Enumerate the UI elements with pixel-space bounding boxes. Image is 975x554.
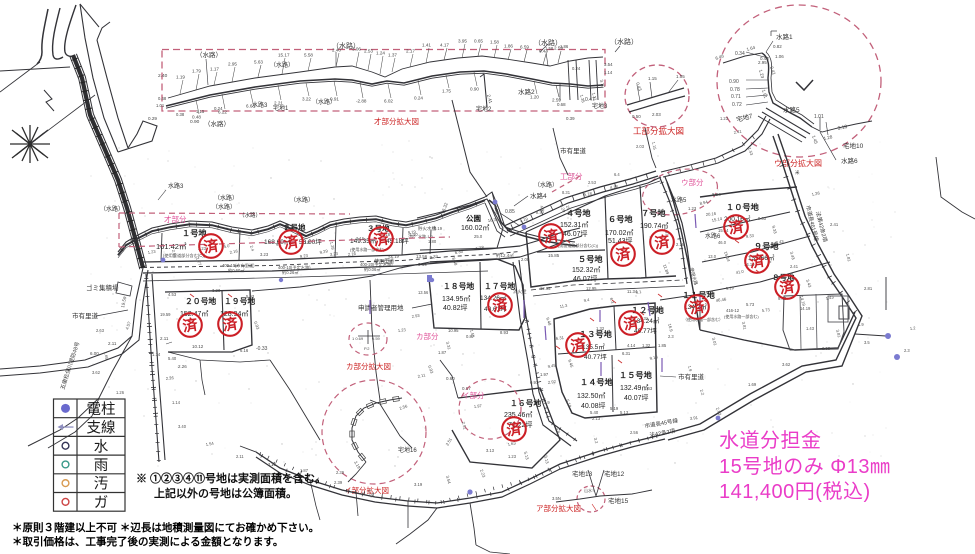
svg-text:2.11: 2.11 — [160, 336, 169, 341]
svg-text:6.4: 6.4 — [614, 172, 620, 177]
svg-text:水路5: 水路5 — [783, 105, 800, 114]
svg-text:5.93: 5.93 — [246, 294, 255, 299]
svg-text:2.40: 2.40 — [158, 73, 168, 79]
svg-text:0.71: 0.71 — [731, 94, 741, 100]
svg-text:15.85: 15.85 — [548, 253, 560, 258]
svg-text:宅地2: 宅地2 — [476, 105, 492, 113]
svg-text:P.2: P.2 — [364, 346, 370, 351]
svg-text:宅地3: 宅地3 — [592, 102, 608, 110]
svg-text:152.31㎡: 152.31㎡ — [560, 221, 588, 229]
svg-text:1.85: 1.85 — [658, 343, 667, 348]
svg-text:＊原則３階建以上不可 ＊辺長は地積測量図にてお確かめ下さい。: ＊原則３階建以上不可 ＊辺長は地積測量図にてお確かめ下さい。 — [12, 521, 319, 534]
svg-text:カ部分拡大図: カ部分拡大図 — [346, 361, 391, 371]
svg-text:宅地16: 宅地16 — [398, 446, 417, 454]
svg-text:水道分担金: 水道分担金 — [719, 429, 822, 452]
svg-text:134.95㎡: 134.95㎡ — [442, 295, 470, 303]
svg-text:1.14: 1.14 — [172, 400, 181, 405]
svg-text:1.23: 1.23 — [720, 116, 729, 121]
svg-text:2.53: 2.53 — [588, 180, 597, 185]
svg-text:3.62: 3.62 — [782, 362, 791, 367]
svg-text:宅地15: 宅地15 — [608, 496, 629, 505]
svg-text:160.02㎡: 160.02㎡ — [461, 224, 489, 232]
svg-text:40.82坪: 40.82坪 — [443, 304, 468, 312]
svg-text:13.56: 13.56 — [418, 290, 429, 295]
svg-text:0.97: 0.97 — [530, 380, 539, 385]
svg-text:6.02: 6.02 — [384, 99, 393, 104]
svg-text:3.40: 3.40 — [178, 424, 187, 429]
svg-text:2.13: 2.13 — [592, 416, 601, 421]
svg-text:132.50㎡: 132.50㎡ — [577, 392, 605, 400]
svg-text:イ部分拡大図: イ部分拡大図 — [344, 485, 389, 495]
svg-text:水路3: 水路3 — [252, 101, 268, 109]
svg-text:上記以外の号地は公簿面積。: 上記以外の号地は公簿面積。 — [154, 486, 297, 500]
svg-text:1.15: 1.15 — [648, 76, 657, 81]
svg-text:（水路）: （水路） — [534, 181, 558, 189]
svg-text:１０号地: １０号地 — [726, 202, 760, 212]
svg-text:（水路）: （水路） — [312, 98, 336, 106]
svg-text:2.26: 2.26 — [166, 375, 175, 381]
svg-text:-2.88: -2.88 — [356, 99, 367, 104]
svg-text:水路3: 水路3 — [168, 182, 184, 190]
svg-text:1.23: 1.23 — [688, 206, 697, 211]
svg-text:3.19: 3.19 — [414, 482, 423, 487]
svg-text:0.24: 0.24 — [414, 96, 423, 101]
svg-text:3.22: 3.22 — [302, 97, 311, 102]
svg-text:水路1: 水路1 — [776, 32, 793, 41]
svg-text:2.26: 2.26 — [178, 364, 187, 369]
svg-text:8.31: 8.31 — [562, 190, 571, 195]
svg-text:14.19: 14.19 — [800, 306, 811, 311]
svg-text:雨: 雨 — [94, 458, 109, 474]
svg-text:汚: 汚 — [94, 476, 109, 493]
svg-text:才部分拡大図: 才部分拡大図 — [374, 116, 419, 126]
svg-text:5.19: 5.19 — [610, 406, 619, 411]
svg-text:（水路）: （水路） — [212, 203, 236, 211]
svg-text:0.78: 0.78 — [730, 87, 740, 93]
svg-text:46.07坪: 46.07坪 — [563, 230, 588, 238]
svg-text:4.14: 4.14 — [627, 343, 636, 348]
svg-text:1.05: 1.05 — [676, 74, 685, 79]
svg-text:1.06: 1.06 — [775, 54, 784, 59]
svg-text:水: 水 — [94, 438, 109, 455]
svg-text:1.15: 1.15 — [196, 109, 205, 114]
svg-text:40.08坪: 40.08坪 — [581, 402, 606, 410]
svg-text:1.87: 1.87 — [438, 350, 447, 355]
svg-text:5.40: 5.40 — [168, 356, 177, 361]
svg-text:2.11: 2.11 — [236, 454, 244, 459]
svg-text:山水?: 山水? — [584, 487, 595, 493]
svg-text:2.08: 2.08 — [521, 257, 530, 262]
svg-text:1.97: 1.97 — [540, 372, 549, 377]
svg-text:0.68: 0.68 — [557, 102, 566, 107]
svg-text:0.39: 0.39 — [566, 116, 575, 121]
svg-text:6.16: 6.16 — [240, 348, 249, 353]
svg-text:8.94: 8.94 — [712, 192, 721, 197]
svg-text:2.11: 2.11 — [108, 341, 117, 346]
svg-text:才部分: 才部分 — [164, 214, 187, 224]
svg-text:1.63: 1.63 — [644, 386, 653, 391]
svg-text:0.60: 0.60 — [446, 376, 455, 381]
svg-text:0.34: 0.34 — [735, 51, 745, 57]
svg-text:市有里道: 市有里道 — [72, 311, 99, 320]
svg-text:1.58: 1.58 — [490, 40, 499, 45]
svg-text:15号地のみ Φ13㎜: 15号地のみ Φ13㎜ — [719, 455, 891, 478]
svg-text:５号地: ５号地 — [578, 254, 603, 264]
svg-text:公園: 公園 — [466, 214, 481, 223]
svg-text:1.43: 1.43 — [806, 326, 815, 331]
svg-text:4.53: 4.53 — [168, 292, 177, 297]
svg-text:宅地1: 宅地1 — [273, 104, 289, 112]
svg-text:3.62: 3.62 — [92, 370, 101, 375]
svg-text:0.59: 0.59 — [372, 336, 381, 341]
svg-text:2.95: 2.95 — [758, 60, 767, 65]
svg-text:141,400円(税込): 141,400円(税込) — [719, 480, 871, 503]
svg-text:2.63: 2.63 — [822, 346, 831, 351]
svg-text:25.0: 25.0 — [474, 234, 483, 239]
svg-text:-0.33: -0.33 — [256, 346, 268, 352]
svg-text:5.58: 5.58 — [304, 53, 313, 58]
svg-text:1.14: 1.14 — [152, 352, 161, 357]
svg-text:イ部分: イ部分 — [462, 390, 485, 400]
svg-text:19.59: 19.59 — [160, 312, 171, 317]
svg-text:9.19: 9.19 — [726, 285, 735, 291]
svg-text:（水路）: （水路） — [239, 211, 261, 219]
svg-text:1.23: 1.23 — [508, 454, 517, 459]
svg-text:2.95: 2.95 — [228, 62, 237, 67]
svg-text:2.18: 2.18 — [676, 242, 685, 247]
svg-text:0.90: 0.90 — [470, 87, 479, 92]
svg-text:約12.4㎡: 約12.4㎡ — [496, 252, 514, 259]
svg-text:（水路）: （水路） — [196, 50, 222, 59]
svg-text:市有里道: 市有里道 — [678, 372, 705, 381]
svg-text:3.95: 3.95 — [458, 39, 467, 44]
svg-text:宅地10: 宅地10 — [843, 141, 864, 150]
svg-text:2.41: 2.41 — [790, 264, 799, 269]
svg-text:10.95: 10.95 — [448, 328, 459, 333]
svg-text:0.82: 0.82 — [773, 44, 782, 49]
svg-text:ア部分拡大図: ア部分拡大図 — [536, 503, 581, 513]
svg-text:約0.60㎡: 約0.60㎡ — [228, 267, 245, 274]
svg-text:水路4: 水路4 — [530, 191, 547, 200]
svg-text:（水路）: （水路） — [610, 37, 638, 46]
svg-text:１８号地: １８号地 — [443, 281, 474, 291]
svg-text:0.65: 0.65 — [474, 39, 483, 44]
svg-text:申請者管理用地: 申請者管理用地 — [358, 303, 404, 312]
svg-text:2.39: 2.39 — [334, 480, 343, 485]
svg-text:2.39: 2.39 — [336, 470, 345, 475]
svg-text:1.14: 1.14 — [604, 70, 613, 75]
svg-text:0.48: 0.48 — [192, 115, 201, 120]
svg-text:5.73: 5.73 — [746, 302, 755, 307]
svg-text:１４号地: １４号地 — [580, 377, 614, 387]
svg-text:0.24: 0.24 — [572, 66, 581, 71]
svg-text:(前面道路部分含む(C)): (前面道路部分含む(C)) — [558, 242, 599, 248]
svg-text:1.26: 1.26 — [116, 390, 125, 395]
svg-text:宅地12: 宅地12 — [604, 469, 625, 478]
svg-text:（水路）: （水路） — [270, 61, 294, 69]
svg-text:（水路）: （水路） — [332, 41, 360, 50]
svg-text:1.41: 1.41 — [422, 43, 431, 48]
svg-text:416-12: 416-12 — [726, 308, 740, 313]
svg-text:2.9: 2.9 — [544, 400, 550, 405]
svg-text:13.0: 13.0 — [708, 254, 717, 259]
svg-text:水路6: 水路6 — [841, 156, 858, 165]
svg-text:約0.06㎡: 約0.06㎡ — [364, 266, 381, 273]
svg-text:1.75: 1.75 — [442, 89, 451, 94]
svg-text:0.19: 0.19 — [434, 226, 443, 231]
svg-text:2.3: 2.3 — [668, 334, 674, 339]
svg-text:カ部分: カ部分 — [416, 331, 439, 341]
svg-text:0.90: 0.90 — [729, 79, 739, 85]
svg-text:2.53: 2.53 — [364, 49, 373, 54]
svg-text:電柱: 電柱 — [87, 401, 116, 418]
svg-text:支線: 支線 — [87, 420, 116, 437]
svg-text:3.54: 3.54 — [604, 62, 613, 67]
svg-text:市有里道: 市有里道 — [560, 146, 587, 155]
svg-text:７号地: ７号地 — [641, 208, 666, 218]
svg-text:5.40: 5.40 — [590, 410, 599, 415]
svg-text:1.17: 1.17 — [210, 67, 219, 72]
svg-text:１６号地: １６号地 — [510, 398, 541, 408]
svg-text:3.23: 3.23 — [268, 462, 277, 467]
svg-text:0.48: 0.48 — [158, 96, 167, 101]
svg-text:（水路）: （水路） — [214, 194, 238, 202]
svg-text:1.37: 1.37 — [388, 53, 397, 58]
svg-text:ウ部分: ウ部分 — [681, 177, 704, 187]
svg-text:40.07坪: 40.07坪 — [624, 394, 649, 402]
svg-text:0.29: 0.29 — [148, 116, 157, 121]
svg-text:170.02㎡: 170.02㎡ — [605, 229, 633, 237]
svg-text:1.32: 1.32 — [642, 343, 651, 348]
svg-text:2.21: 2.21 — [274, 101, 283, 106]
svg-text:2.03: 2.03 — [652, 112, 661, 117]
svg-text:1.86: 1.86 — [504, 44, 513, 49]
svg-text:1.24: 1.24 — [376, 51, 385, 56]
svg-text:3.23: 3.23 — [212, 288, 221, 293]
svg-text:2.63: 2.63 — [96, 328, 105, 333]
svg-text:2.56: 2.56 — [630, 430, 639, 435]
svg-text:米: 米 — [795, 169, 800, 176]
svg-text:1.9: 1.9 — [858, 322, 864, 327]
svg-text:水路2: 水路2 — [518, 87, 535, 96]
svg-text:1.01: 1.01 — [156, 103, 165, 108]
svg-text:※ ①②③④⑪号地は実測面積を含む。: ※ ①②③④⑪号地は実測面積を含む。 — [136, 471, 326, 485]
svg-text:0.90: 0.90 — [190, 119, 200, 125]
svg-text:約0.26㎡: 約0.26㎡ — [282, 269, 299, 276]
svg-text:6.31: 6.31 — [622, 351, 631, 356]
svg-text:水路6: 水路6 — [705, 232, 721, 240]
svg-text:1.80: 1.80 — [428, 239, 437, 244]
svg-text:3.5: 3.5 — [864, 340, 870, 345]
svg-text:2.41: 2.41 — [830, 222, 839, 227]
svg-text:＊取引価格は、工事完了後の実測による金額となります。: ＊取引価格は、工事完了後の実測による金額となります。 — [12, 535, 283, 548]
svg-text:0.72: 0.72 — [732, 102, 742, 108]
svg-text:1 0.69: 1 0.69 — [352, 336, 364, 341]
svg-text:（水路）: （水路） — [534, 38, 562, 47]
svg-text:2.81: 2.81 — [864, 286, 873, 291]
svg-text:3.23: 3.23 — [260, 252, 269, 257]
svg-text:0.85: 0.85 — [505, 209, 515, 215]
svg-text:2.17: 2.17 — [406, 49, 415, 54]
svg-text:46.0: 46.0 — [718, 240, 727, 245]
svg-text:3.9: 3.9 — [304, 240, 310, 245]
svg-text:13.56: 13.56 — [416, 254, 428, 259]
svg-text:１５号地: １５号地 — [619, 370, 653, 380]
svg-text:46.07坪: 46.07坪 — [573, 275, 598, 283]
svg-text:2.16: 2.16 — [356, 236, 365, 241]
svg-text:5.63: 5.63 — [254, 60, 263, 65]
svg-text:2.3: 2.3 — [904, 348, 910, 353]
svg-text:（水路）: （水路） — [100, 205, 124, 213]
svg-text:６号地: ６号地 — [608, 214, 633, 224]
svg-text:1.79: 1.79 — [192, 69, 201, 74]
svg-text:（水路）: （水路） — [290, 196, 314, 204]
svg-text:0.47: 0.47 — [585, 97, 595, 103]
svg-text:40.77坪: 40.77坪 — [584, 353, 607, 361]
svg-text:15.17: 15.17 — [278, 53, 290, 58]
svg-text:2.03: 2.03 — [636, 144, 645, 149]
svg-text:１７号地: １７号地 — [484, 281, 515, 291]
svg-text:ゴミ集積場: ゴミ集積場 — [86, 283, 119, 292]
svg-text:0.38: 0.38 — [176, 112, 185, 117]
svg-text:1.01: 1.01 — [814, 114, 824, 120]
svg-text:12.95: 12.95 — [540, 286, 551, 291]
svg-text:6.59: 6.59 — [520, 45, 529, 50]
svg-text:0.24: 0.24 — [214, 106, 223, 111]
svg-text:12.95: 12.95 — [586, 286, 597, 291]
svg-text:9.33: 9.33 — [758, 216, 767, 221]
svg-text:5.73: 5.73 — [762, 307, 771, 313]
svg-text:２０号地: ２０号地 — [185, 296, 216, 306]
svg-text:10.12: 10.12 — [192, 344, 204, 349]
svg-text:0.50: 0.50 — [632, 114, 641, 119]
svg-text:1.97: 1.97 — [474, 403, 483, 409]
svg-text:1.19: 1.19 — [176, 75, 185, 80]
svg-text:ガ: ガ — [94, 494, 109, 511]
svg-text:宅地13: 宅地13 — [572, 469, 593, 478]
svg-text:(使用水路一部含む): (使用水路一部含む) — [724, 313, 759, 319]
svg-text:1.32: 1.32 — [596, 326, 605, 331]
svg-text:6.00: 6.00 — [90, 351, 99, 356]
svg-text:152.32㎡: 152.32㎡ — [572, 266, 600, 274]
svg-text:3.5N: 3.5N — [552, 496, 561, 501]
svg-text:1.69: 1.69 — [748, 382, 757, 387]
svg-text:工部分拡大図: 工部分拡大図 — [633, 126, 684, 136]
svg-text:9.19: 9.19 — [408, 229, 417, 235]
svg-text:（水路）: （水路） — [204, 119, 230, 128]
svg-text:4.17: 4.17 — [440, 43, 449, 48]
svg-text:3.13: 3.13 — [486, 448, 495, 453]
svg-text:8.93: 8.93 — [500, 330, 509, 335]
svg-text:1.23: 1.23 — [398, 327, 407, 333]
svg-text:5.13: 5.13 — [620, 410, 629, 415]
